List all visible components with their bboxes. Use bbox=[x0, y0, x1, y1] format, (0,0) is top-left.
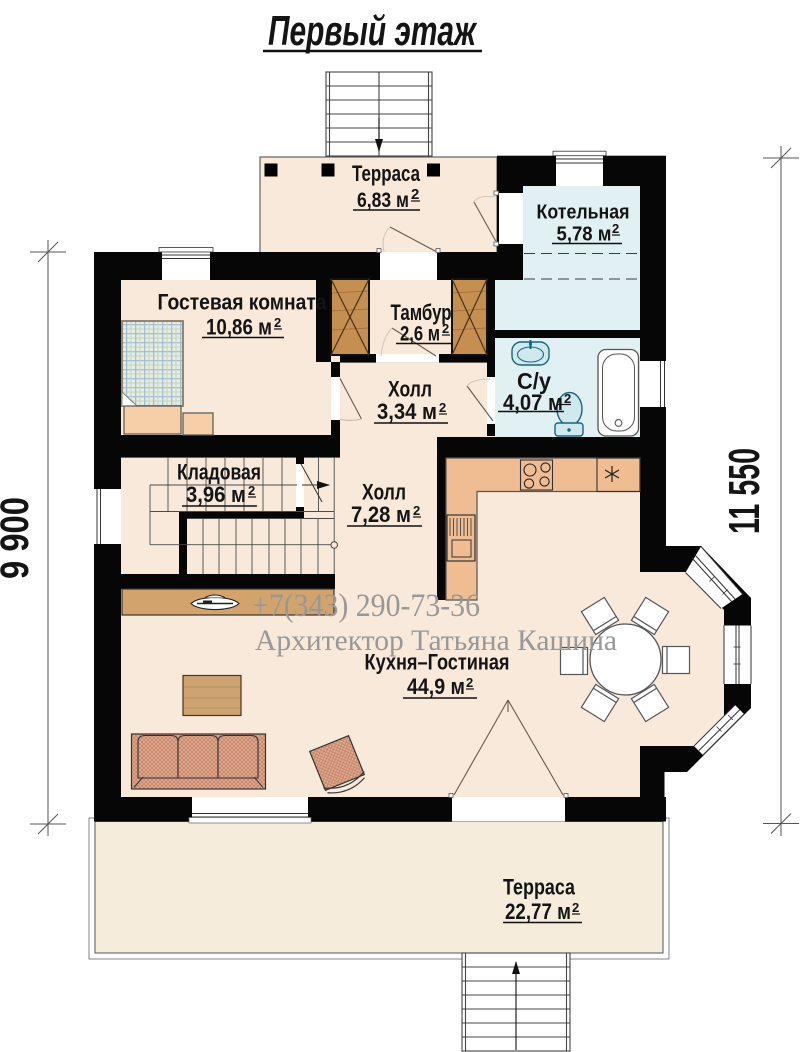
svg-text:3,34 м: 3,34 м bbox=[377, 399, 437, 424]
svg-text:2: 2 bbox=[612, 221, 619, 236]
svg-text:Гостевая комната: Гостевая комната bbox=[158, 290, 327, 315]
svg-text:2: 2 bbox=[274, 315, 281, 330]
svg-text:2: 2 bbox=[442, 321, 449, 336]
svg-text:Первый этаж: Первый этаж bbox=[268, 7, 477, 54]
svg-text:44,9 м: 44,9 м bbox=[407, 674, 465, 699]
svg-text:7,28 м: 7,28 м bbox=[351, 502, 411, 527]
svg-text:2: 2 bbox=[564, 391, 571, 406]
svg-text:11 550: 11 550 bbox=[720, 448, 769, 534]
svg-text:2: 2 bbox=[413, 503, 420, 518]
svg-text:Кладовая: Кладовая bbox=[177, 460, 261, 485]
svg-text:Архитектор Татьяна Кашина: Архитектор Татьяна Кашина bbox=[255, 624, 617, 657]
svg-text:Холл: Холл bbox=[362, 480, 406, 505]
svg-text:2: 2 bbox=[248, 483, 255, 498]
svg-text:10,86 м: 10,86 м bbox=[206, 315, 272, 340]
svg-text:2: 2 bbox=[572, 900, 579, 915]
svg-text:2: 2 bbox=[439, 400, 446, 415]
svg-text:5,78 м: 5,78 м bbox=[557, 224, 612, 246]
svg-text:+7(343) 290-73-36: +7(343) 290-73-36 bbox=[252, 588, 480, 624]
svg-text:9 900: 9 900 bbox=[0, 497, 37, 579]
svg-text:Терраса: Терраса bbox=[352, 161, 421, 186]
svg-text:Терраса: Терраса bbox=[503, 875, 576, 900]
svg-text:Холл: Холл bbox=[388, 377, 432, 402]
svg-text:2: 2 bbox=[466, 675, 473, 690]
svg-text:22,77 м: 22,77 м bbox=[505, 899, 571, 924]
svg-text:3,96 м: 3,96 м bbox=[186, 482, 246, 507]
svg-text:6,83 м: 6,83 м bbox=[357, 189, 409, 212]
svg-text:2,6 м: 2,6 м bbox=[400, 323, 440, 346]
